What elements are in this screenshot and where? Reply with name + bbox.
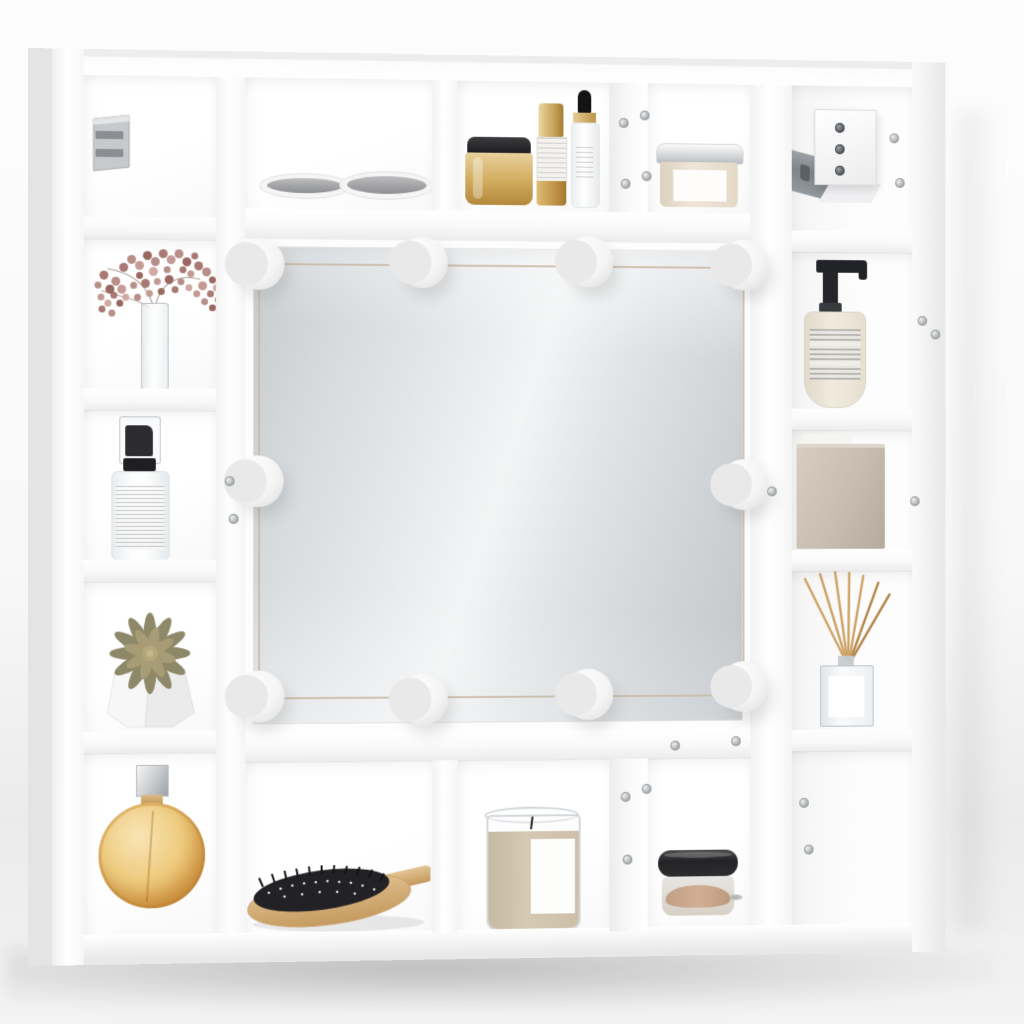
panel-screw bbox=[621, 792, 631, 802]
rail-slot bbox=[800, 164, 809, 182]
cubby-top-left bbox=[84, 75, 216, 218]
bracket-screw bbox=[835, 166, 844, 176]
mirror bbox=[245, 238, 750, 732]
spray-bottle-nozzle bbox=[125, 425, 153, 456]
makeup-compact bbox=[259, 173, 351, 200]
pump-bottle-label bbox=[537, 137, 568, 183]
led-bulb bbox=[563, 236, 613, 287]
top-row-divider-wide bbox=[609, 83, 647, 213]
powder-jar-lid bbox=[658, 849, 738, 876]
candle-label bbox=[531, 839, 575, 914]
panel-screw bbox=[619, 118, 629, 128]
panel-screw bbox=[621, 179, 631, 189]
candle-glass bbox=[487, 814, 581, 931]
dropper-ferrule bbox=[573, 113, 596, 123]
cubby-bottom-brush bbox=[245, 760, 432, 936]
diffuser-label bbox=[829, 676, 865, 717]
cubby-top-right bbox=[792, 85, 912, 231]
cubby-top-cosmetics bbox=[458, 80, 610, 212]
left-shelf bbox=[84, 731, 216, 754]
led-bulb bbox=[234, 238, 285, 290]
panel-screw bbox=[642, 171, 652, 181]
led-bulb bbox=[398, 674, 448, 726]
shelf-above-mirror bbox=[245, 208, 750, 242]
glass-vase bbox=[141, 303, 169, 391]
dropper-bulb bbox=[578, 90, 591, 114]
panel-screw bbox=[640, 111, 650, 121]
makeup-compact bbox=[339, 171, 434, 201]
mirror-cabinet-unit bbox=[28, 48, 946, 966]
cubby-left-perfume bbox=[84, 752, 216, 935]
wall-shadow bbox=[958, 110, 1010, 930]
led-bulb bbox=[719, 459, 768, 510]
dropper-label bbox=[576, 147, 593, 181]
pump-bottle-base bbox=[537, 181, 567, 206]
pump-bottle-cap bbox=[538, 103, 563, 137]
panel-screw bbox=[229, 514, 239, 524]
panel-screw bbox=[670, 741, 680, 751]
panel-screw bbox=[767, 487, 776, 497]
cubby-left-succulent bbox=[84, 582, 216, 732]
left-shelf bbox=[84, 560, 216, 582]
led-bulb bbox=[563, 669, 613, 720]
top-row-divider bbox=[432, 80, 457, 210]
wall-bracket-right bbox=[814, 109, 876, 186]
right-side-panel bbox=[912, 62, 946, 952]
left-shelf bbox=[84, 217, 216, 240]
storage-box bbox=[796, 448, 884, 549]
right-shelf bbox=[792, 550, 912, 572]
cubby-bottom-candle bbox=[458, 759, 610, 934]
cubby-top-palettes bbox=[245, 77, 432, 210]
bracket-screw bbox=[835, 123, 844, 133]
panel-screw bbox=[731, 736, 740, 746]
led-bulb bbox=[719, 661, 768, 712]
soap-pump-stem bbox=[823, 272, 838, 305]
right-shelf bbox=[792, 230, 912, 253]
led-bulb bbox=[398, 236, 448, 288]
succulent-plant bbox=[84, 582, 216, 732]
left-shelf bbox=[84, 388, 216, 410]
cubby-right-soap bbox=[792, 252, 912, 409]
wall-bracket-left-icon bbox=[86, 113, 141, 183]
cream-jar-label bbox=[673, 170, 726, 202]
bracket-flange bbox=[818, 183, 881, 203]
powder-jar-body bbox=[662, 876, 734, 916]
dried-flowers bbox=[94, 243, 99, 248]
spray-bottle-collar bbox=[123, 458, 156, 471]
cubby-left-spray bbox=[84, 410, 216, 560]
panel-screw bbox=[910, 496, 919, 506]
right-shelf bbox=[792, 729, 912, 751]
panel-screw bbox=[799, 798, 808, 808]
led-bulb bbox=[233, 455, 284, 507]
cubby-left-flowers bbox=[84, 239, 216, 389]
cubby-right-box bbox=[792, 430, 912, 550]
cubby-right-empty bbox=[792, 750, 912, 924]
cubby-top-cream-jar bbox=[648, 83, 751, 213]
panel-screw bbox=[890, 133, 899, 143]
panel-screw bbox=[931, 330, 940, 340]
diffuser-reeds bbox=[796, 571, 907, 669]
gold-jar-highlight bbox=[473, 157, 483, 198]
bottom-row-divider bbox=[432, 760, 457, 934]
cubby-bottom-powder bbox=[648, 758, 751, 931]
hairbrush bbox=[245, 839, 430, 936]
cubby-right-diffuser bbox=[792, 571, 912, 730]
left-inner-divider bbox=[216, 77, 245, 933]
bracket-screw bbox=[835, 144, 844, 154]
spray-bottle-label bbox=[115, 486, 164, 550]
panel-screw bbox=[225, 476, 235, 486]
powder-fill bbox=[666, 885, 731, 908]
panel-screw bbox=[642, 784, 652, 794]
scene bbox=[0, 0, 1024, 1024]
panel-screw bbox=[804, 845, 813, 855]
panel-screw bbox=[895, 178, 904, 188]
soap-label bbox=[810, 329, 861, 380]
left-side-panel bbox=[28, 48, 84, 966]
panel-screw bbox=[623, 855, 633, 865]
bottom-row-divider-wide bbox=[609, 759, 647, 932]
perfume-cap bbox=[136, 765, 169, 797]
led-bulb bbox=[234, 671, 285, 723]
right-shelf bbox=[792, 409, 912, 431]
led-bulb bbox=[719, 240, 768, 291]
panel-screw bbox=[918, 316, 927, 326]
